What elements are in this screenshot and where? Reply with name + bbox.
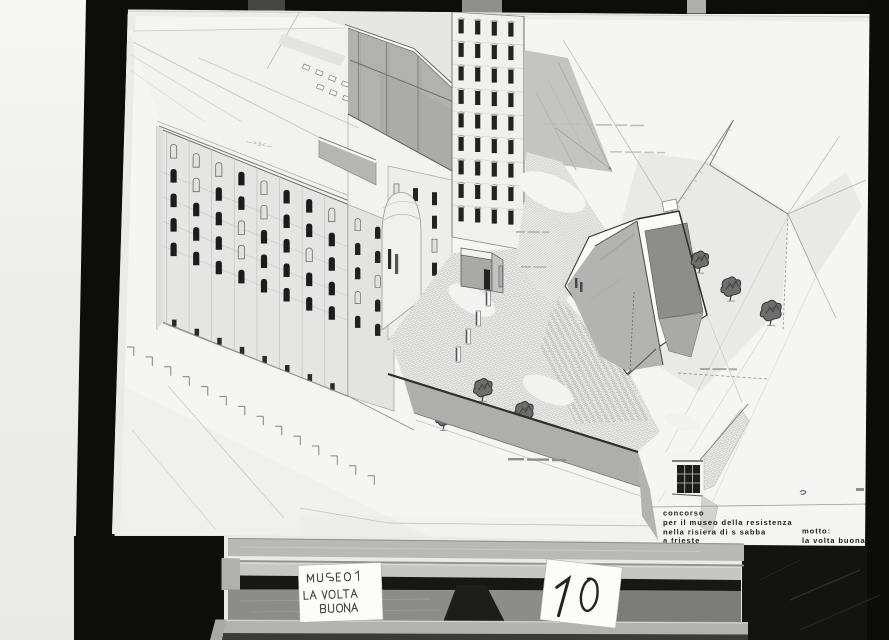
svg-text:per il museo della resistenza: per il museo della resistenza xyxy=(663,518,793,527)
svg-text:concorso: concorso xyxy=(663,509,704,518)
svg-text:la volta buona: la volta buona xyxy=(802,536,866,545)
svg-text:motto:: motto: xyxy=(802,527,831,536)
